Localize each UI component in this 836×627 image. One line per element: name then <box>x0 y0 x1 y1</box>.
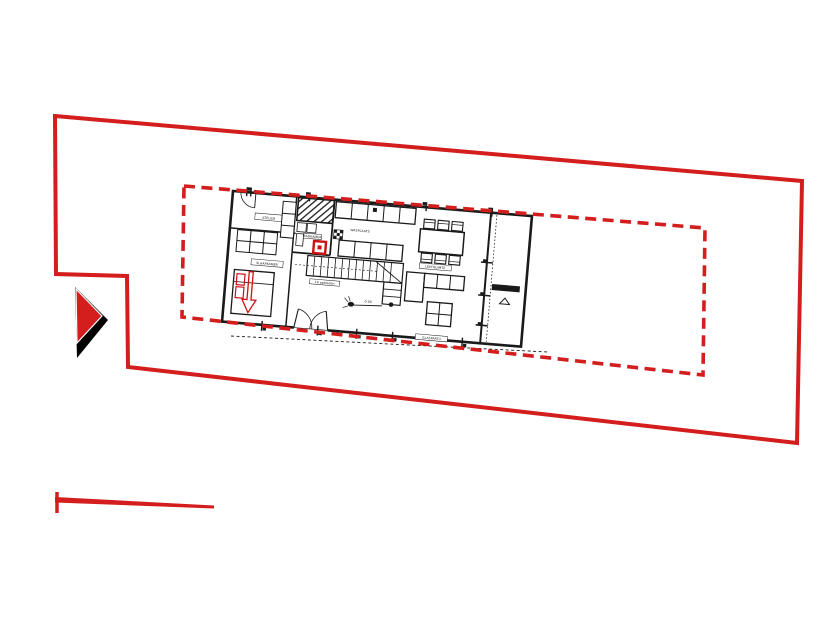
sofa <box>404 272 464 306</box>
stair-turn <box>382 282 402 305</box>
kitchen-label: WASPLAATS <box>350 228 370 234</box>
checker-symbol <box>333 230 343 240</box>
door-arc <box>297 309 314 329</box>
door-arc <box>240 192 256 208</box>
room-label: BADKAMER <box>303 234 322 240</box>
bottom-wall-label: GLASPARTIJ <box>415 334 447 342</box>
north-triangle-marker <box>75 287 108 358</box>
hatched-area <box>297 198 335 224</box>
sink <box>297 223 307 233</box>
terrace: TERRAS <box>474 214 525 344</box>
closet-column <box>280 201 296 238</box>
stair-label: 16 optreden <box>314 280 334 286</box>
house-terrace-divider-wall <box>480 213 491 344</box>
terrace-dotted-line <box>486 215 497 342</box>
room-bedroom: SLAAPKAMER <box>230 247 292 326</box>
level-label: 0.00 <box>364 299 372 304</box>
sink-marker <box>373 208 377 212</box>
sink <box>307 223 317 233</box>
highlighted-fixture-dot <box>317 245 321 249</box>
staircase: 16 optreden <box>292 254 403 307</box>
dining-table <box>419 229 465 256</box>
dining-set: LEEFRUIMTE <box>417 219 465 272</box>
site-plan-svg: ATELIER SLAAPKAMER <box>0 0 836 627</box>
secondary-boundary-fragment <box>55 492 214 513</box>
wardrobe-grid <box>236 230 278 255</box>
kitchen: WASPLAATS <box>332 202 416 263</box>
level-marker-icon: 0.00 <box>343 296 383 311</box>
coffee-table <box>425 302 452 327</box>
room-label: LEEFRUIMTE <box>425 265 446 271</box>
triangle-symbol <box>500 298 510 305</box>
svg-text:GLASPARTIJ: GLASPARTIJ <box>422 336 441 342</box>
site-plan-page: ATELIER SLAAPKAMER <box>0 0 836 627</box>
entrance-double-doors <box>294 309 329 331</box>
